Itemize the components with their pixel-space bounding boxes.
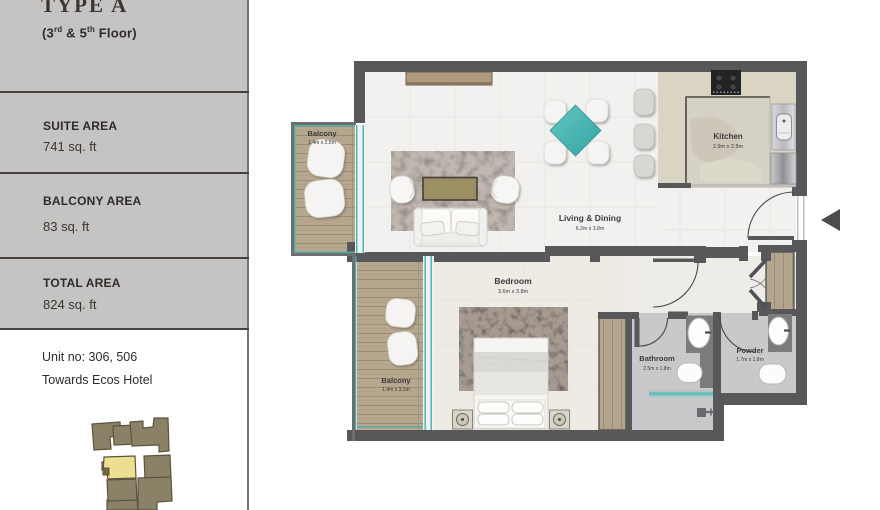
- svg-text:Bathroom: Bathroom: [639, 354, 675, 363]
- svg-text:Powder: Powder: [736, 346, 763, 355]
- svg-text:Kitchen: Kitchen: [713, 132, 742, 141]
- svg-text:1.7m x 1.8m: 1.7m x 1.8m: [736, 357, 764, 363]
- svg-text:6.2m x 3.8m: 6.2m x 3.8m: [576, 226, 605, 232]
- svg-text:Balcony: Balcony: [307, 129, 337, 138]
- svg-text:3.6m x 3.8m: 3.6m x 3.8m: [498, 289, 529, 295]
- svg-text:Living & Dining: Living & Dining: [559, 213, 621, 223]
- svg-text:Balcony: Balcony: [381, 376, 411, 385]
- svg-text:Bedroom: Bedroom: [494, 276, 532, 286]
- svg-text:2.5m x 1.8m: 2.5m x 1.8m: [643, 366, 671, 372]
- svg-text:2.9m x 2.5m: 2.9m x 2.5m: [713, 144, 744, 150]
- svg-text:1.4m x 3.2m: 1.4m x 3.2m: [382, 387, 410, 393]
- svg-text:1.4m x 2.5m: 1.4m x 2.5m: [308, 140, 336, 146]
